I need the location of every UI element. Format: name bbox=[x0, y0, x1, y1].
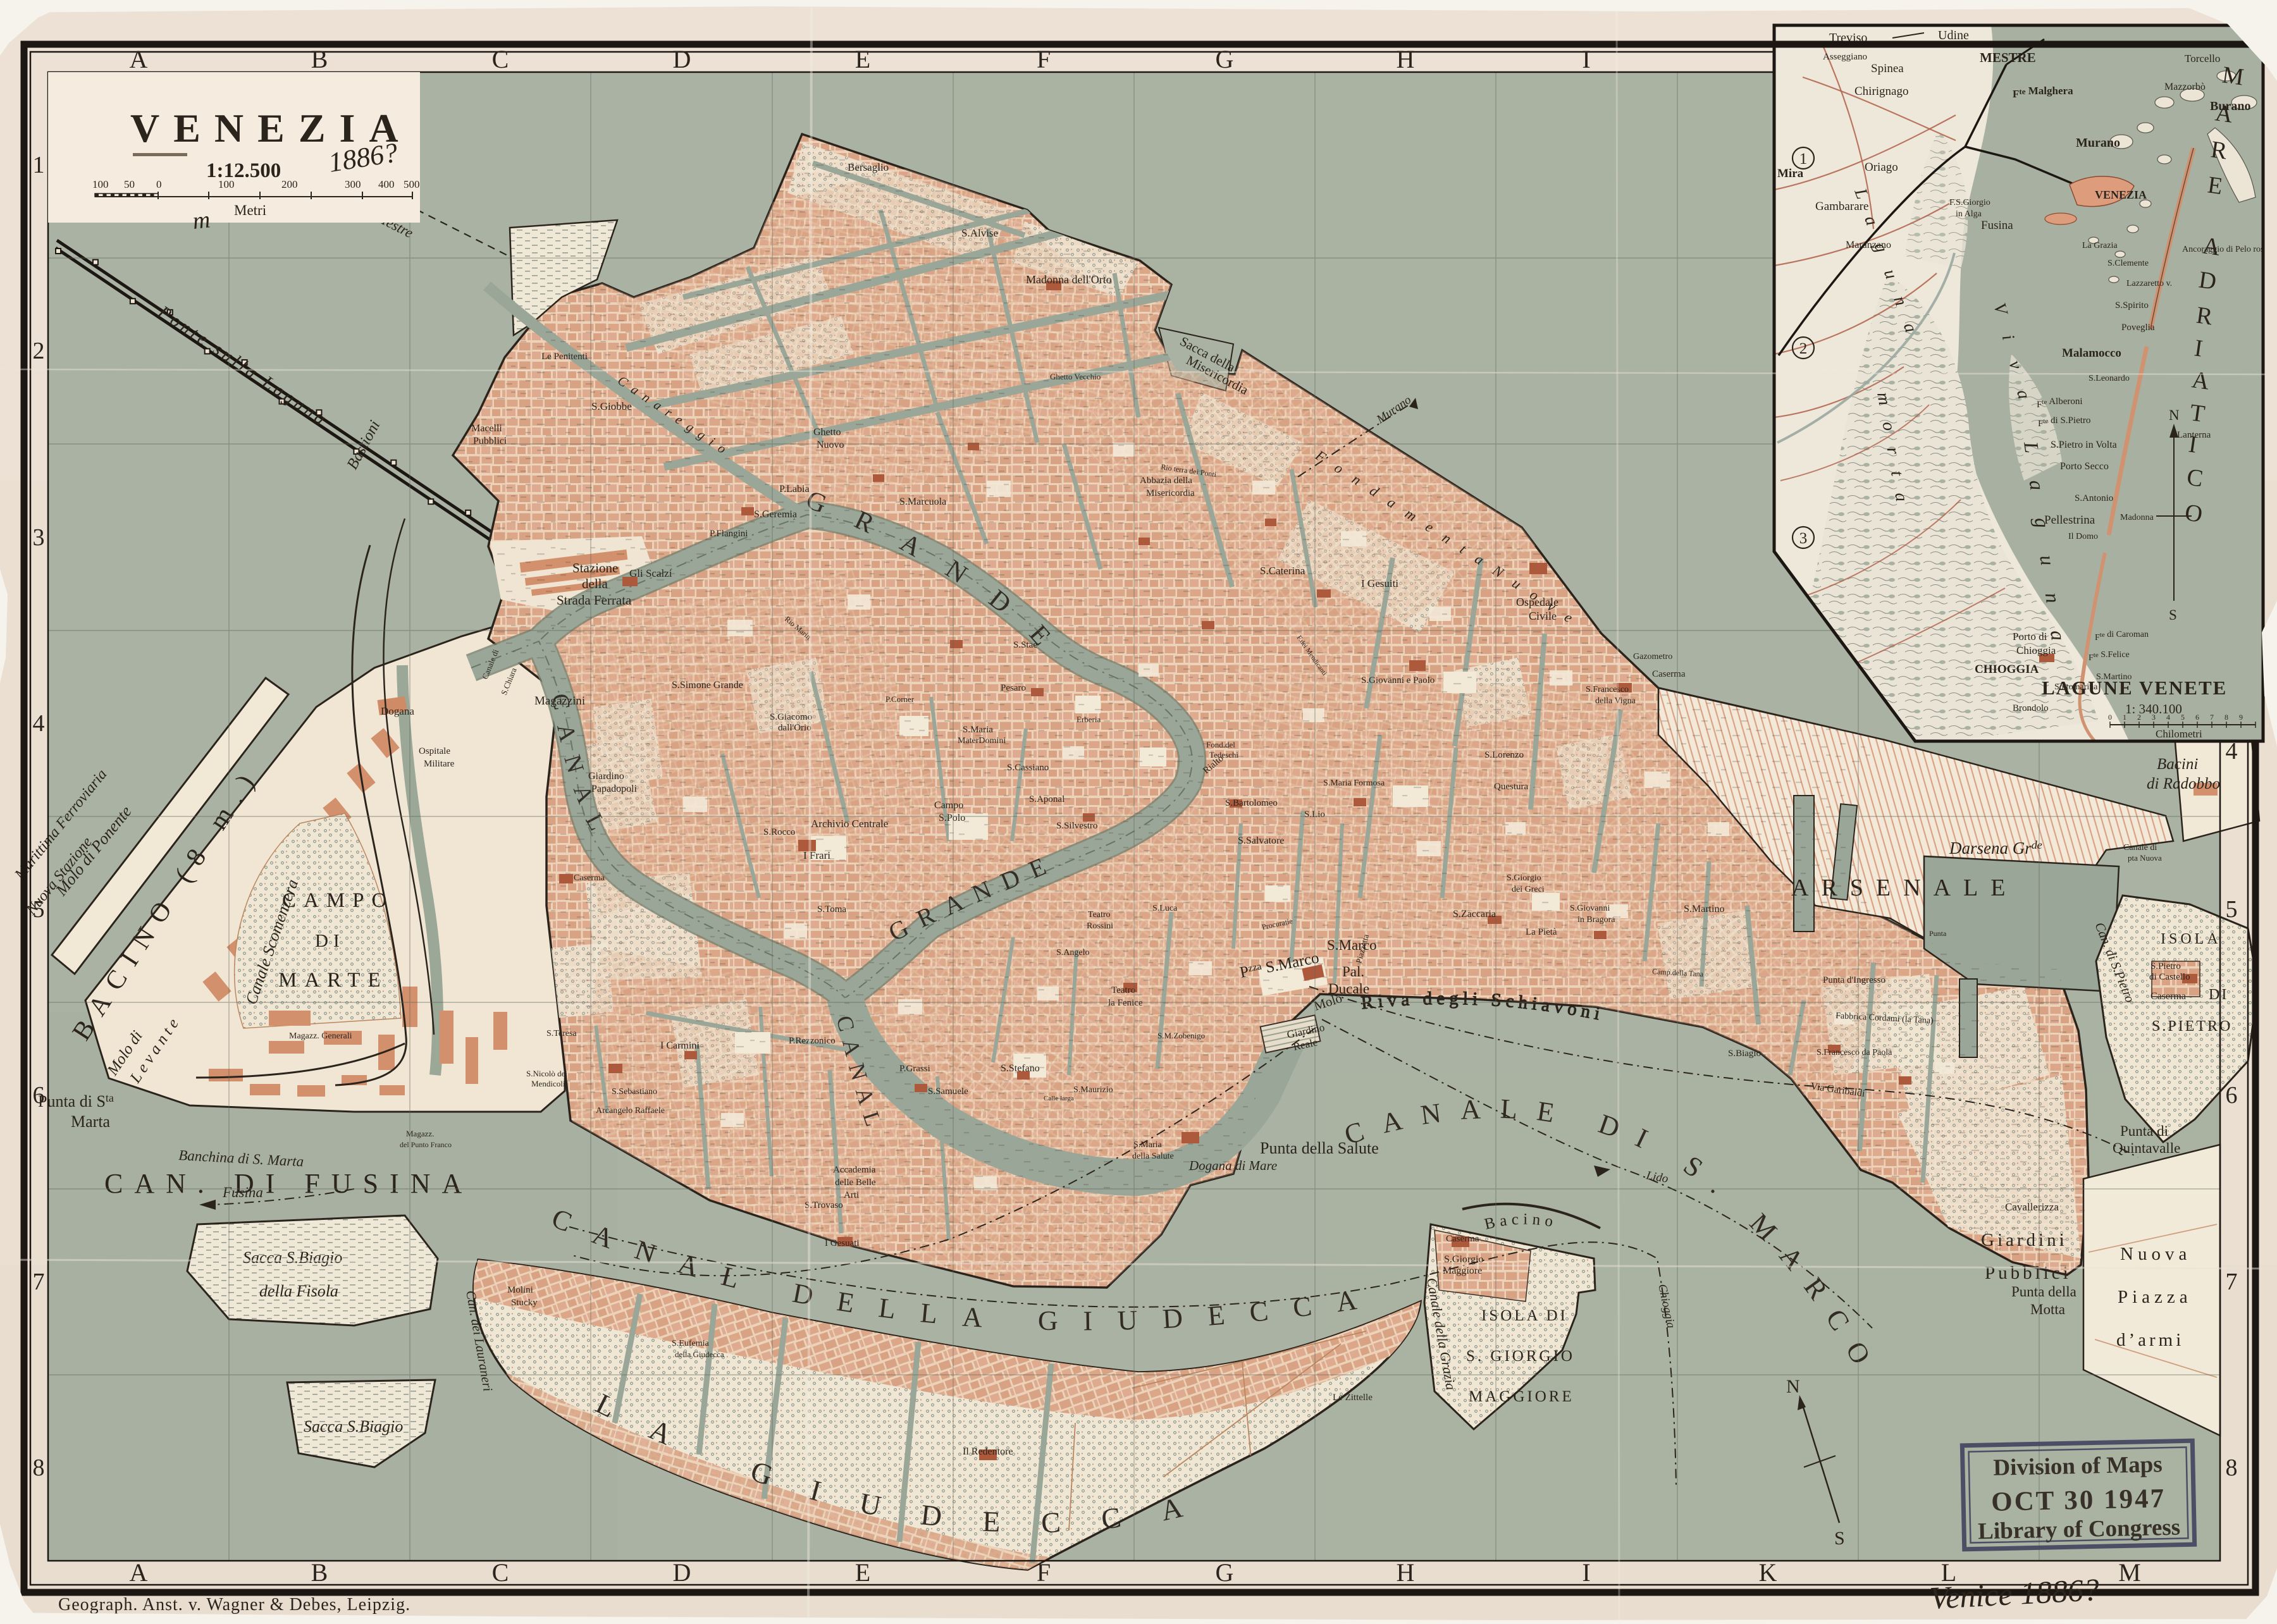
svg-text:500: 500 bbox=[404, 178, 420, 190]
svg-text:Pellestrina: Pellestrina bbox=[2044, 514, 2095, 527]
svg-text:Brondolo: Brondolo bbox=[2013, 703, 2049, 713]
svg-text:100: 100 bbox=[218, 178, 235, 190]
svg-text:Mendicoli: Mendicoli bbox=[531, 1079, 565, 1088]
svg-text:E: E bbox=[855, 45, 870, 73]
svg-text:S.Stefano: S.Stefano bbox=[1001, 1063, 1040, 1074]
svg-text:2: 2 bbox=[1799, 340, 1808, 357]
svg-text:S.Maria Formosa: S.Maria Formosa bbox=[1323, 778, 1385, 788]
svg-text:G: G bbox=[1216, 45, 1234, 73]
svg-text:Chilometri: Chilometri bbox=[2156, 728, 2202, 740]
svg-text:Punta: Punta bbox=[1929, 929, 1947, 938]
svg-text:Militare: Militare bbox=[424, 759, 455, 769]
svg-text:0: 0 bbox=[156, 178, 162, 190]
svg-text:S.Maurizio: S.Maurizio bbox=[1073, 1085, 1113, 1095]
svg-text:I Gesuati: I Gesuati bbox=[825, 1238, 860, 1248]
svg-text:S.Toma: S.Toma bbox=[817, 904, 846, 914]
svg-text:S.Francesco da Paola: S.Francesco da Paola bbox=[1817, 1048, 1892, 1057]
svg-text:S.Maria: S.Maria bbox=[1133, 1140, 1163, 1150]
svg-text:D: D bbox=[2197, 266, 2218, 295]
svg-text:Punta della: Punta della bbox=[2011, 1284, 2076, 1300]
svg-text:P.Labia: P.Labia bbox=[779, 484, 810, 495]
svg-text:S.Salvatore: S.Salvatore bbox=[1238, 835, 1284, 846]
svg-text:Magazzini: Magazzini bbox=[534, 694, 585, 708]
svg-text:Sacca S.Biagio: Sacca S.Biagio bbox=[304, 1417, 403, 1436]
svg-text:Misericordia: Misericordia bbox=[1146, 488, 1195, 498]
svg-text:7: 7 bbox=[33, 1269, 45, 1295]
svg-text:Udine: Udine bbox=[1938, 28, 1969, 42]
svg-text:S.Pietro: S.Pietro bbox=[2150, 961, 2181, 971]
svg-text:Torcello: Torcello bbox=[2185, 52, 2220, 65]
svg-text:Bacini: Bacini bbox=[2157, 756, 2198, 773]
svg-text:S.Francesco: S.Francesco bbox=[1586, 685, 1629, 694]
svg-text:MESTRE: MESTRE bbox=[1980, 50, 2036, 65]
svg-text:5: 5 bbox=[2181, 713, 2185, 722]
svg-text:Motta: Motta bbox=[2030, 1301, 2065, 1317]
svg-text:S.Lorenzo: S.Lorenzo bbox=[1484, 750, 1524, 760]
svg-text:Maggiore: Maggiore bbox=[1443, 1265, 1482, 1276]
svg-text:Porto di: Porto di bbox=[2013, 631, 2047, 643]
svg-text:K: K bbox=[1759, 1558, 1777, 1587]
svg-text:P.Rezzonico: P.Rezzonico bbox=[789, 1036, 836, 1046]
svg-text:Chirignago: Chirignago bbox=[1854, 85, 1909, 98]
svg-text:Mazzorbò: Mazzorbò bbox=[2164, 82, 2206, 92]
svg-text:dei Greci: dei Greci bbox=[1512, 885, 1545, 894]
svg-text:Arcangelo Raffaele: Arcangelo Raffaele bbox=[596, 1106, 665, 1116]
svg-text:I: I bbox=[1582, 1558, 1590, 1587]
svg-text:400: 400 bbox=[378, 178, 395, 190]
svg-text:F: F bbox=[1037, 1558, 1051, 1587]
svg-text:in Bragora: in Bragora bbox=[1577, 915, 1615, 925]
svg-text:3: 3 bbox=[1799, 530, 1808, 547]
svg-text:S.Martino: S.Martino bbox=[1684, 904, 1724, 914]
svg-text:Division of Maps: Division of Maps bbox=[1993, 1451, 2163, 1481]
svg-text:di Castello: di Castello bbox=[2149, 972, 2190, 982]
svg-text:Bersaglio: Bersaglio bbox=[848, 161, 889, 173]
svg-text:Library of Congress: Library of Congress bbox=[1978, 1515, 2181, 1545]
svg-text:S.Biagio: S.Biagio bbox=[1728, 1049, 1761, 1059]
svg-text:100: 100 bbox=[92, 178, 109, 190]
svg-text:S.Leonardo: S.Leonardo bbox=[2089, 374, 2130, 383]
svg-text:dall'Orio: dall'Orio bbox=[778, 723, 811, 733]
svg-text:S.Teresa: S.Teresa bbox=[546, 1029, 577, 1038]
svg-text:Papadopoli: Papadopoli bbox=[591, 784, 638, 794]
svg-text:50: 50 bbox=[124, 178, 135, 190]
svg-text:Ancoraggio di Pelo rosso: Ancoraggio di Pelo rosso bbox=[2182, 245, 2272, 254]
svg-text:Poveglia: Poveglia bbox=[2121, 323, 2155, 333]
svg-text:S.Pietro in Volta: S.Pietro in Volta bbox=[2051, 440, 2117, 450]
svg-text:S.Giacomo: S.Giacomo bbox=[770, 712, 812, 722]
svg-text:Gambarare: Gambarare bbox=[1815, 200, 1868, 213]
svg-text:A: A bbox=[130, 45, 148, 73]
svg-text:Maranzano: Maranzano bbox=[1846, 240, 1891, 250]
svg-text:200: 200 bbox=[281, 178, 298, 190]
svg-text:Chioggia: Chioggia bbox=[2016, 644, 2056, 656]
svg-text:Fond.del: Fond.del bbox=[1206, 740, 1235, 749]
svg-text:I Frari: I Frari bbox=[803, 849, 830, 861]
svg-text:ARSENALE: ARSENALE bbox=[1791, 875, 2018, 901]
svg-text:della Giudecca: della Giudecca bbox=[675, 1350, 724, 1359]
svg-text:P.Corner: P.Corner bbox=[885, 694, 915, 704]
svg-text:OCT 30 1947: OCT 30 1947 bbox=[1991, 1484, 2166, 1517]
svg-text:delle Belle: delle Belle bbox=[835, 1178, 876, 1188]
svg-text:F: F bbox=[1037, 45, 1051, 73]
svg-text:I Gesuiti: I Gesuiti bbox=[1361, 577, 1398, 589]
svg-text:Archivio Centrale: Archivio Centrale bbox=[811, 818, 888, 830]
svg-text:P.Grassi: P.Grassi bbox=[899, 1064, 930, 1074]
svg-text:6: 6 bbox=[2226, 1082, 2238, 1109]
svg-text:Lazzaretto v.: Lazzaretto v. bbox=[2126, 279, 2172, 288]
svg-text:Il Redentore: Il Redentore bbox=[963, 1446, 1013, 1457]
svg-text:P.Flangini: P.Flangini bbox=[710, 529, 748, 539]
svg-text:5: 5 bbox=[2226, 896, 2238, 923]
svg-text:di Radobbo: di Radobbo bbox=[2147, 775, 2220, 792]
svg-text:Burano: Burano bbox=[2210, 99, 2250, 113]
svg-text:Cavallerizza: Cavallerizza bbox=[2005, 1201, 2059, 1213]
svg-text:S.Angelo: S.Angelo bbox=[1056, 948, 1090, 957]
svg-text:della Salute: della Salute bbox=[1132, 1152, 1174, 1161]
svg-text:Porto Secco: Porto Secco bbox=[2060, 461, 2109, 472]
svg-text:Macelli: Macelli bbox=[471, 423, 502, 434]
svg-text:N: N bbox=[1786, 1376, 1800, 1397]
svg-text:D: D bbox=[673, 1558, 691, 1587]
svg-text:Ghetto: Ghetto bbox=[813, 427, 841, 438]
svg-text:Le Zittelle: Le Zittelle bbox=[1333, 1393, 1373, 1403]
svg-text:Stazione: Stazione bbox=[572, 560, 618, 575]
svg-text:della Vigna: della Vigna bbox=[1595, 696, 1636, 706]
svg-text:Abbazia della: Abbazia della bbox=[1140, 476, 1192, 486]
svg-text:E: E bbox=[855, 1558, 870, 1587]
svg-text:VENEZIA: VENEZIA bbox=[2095, 188, 2147, 201]
svg-text:Madonna dell'Orto: Madonna dell'Orto bbox=[1026, 273, 1112, 286]
svg-text:8: 8 bbox=[2226, 1455, 2238, 1481]
svg-text:C: C bbox=[492, 1558, 509, 1587]
svg-text:Gazometro: Gazometro bbox=[1633, 652, 1672, 661]
svg-text:MaterDomini: MaterDomini bbox=[958, 736, 1006, 746]
svg-text:Mira: Mira bbox=[1777, 167, 1804, 180]
svg-text:4: 4 bbox=[2166, 713, 2170, 722]
svg-text:M: M bbox=[2118, 1558, 2141, 1587]
svg-text:S.Spirito: S.Spirito bbox=[2115, 300, 2149, 311]
svg-text:Spinea: Spinea bbox=[1871, 62, 1904, 75]
svg-text:S.Marcuola: S.Marcuola bbox=[899, 496, 946, 507]
svg-text:Darsena Grde: Darsena Grde bbox=[1949, 839, 2042, 858]
svg-text:CAN. DI FUSINA: CAN. DI FUSINA bbox=[104, 1168, 473, 1199]
svg-text:S.Silvestro: S.Silvestro bbox=[1056, 821, 1097, 831]
svg-text:S.Alvise: S.Alvise bbox=[961, 227, 998, 239]
svg-text:Il Domo: Il Domo bbox=[2068, 532, 2098, 541]
svg-text:S.Sebastiano: S.Sebastiano bbox=[612, 1087, 657, 1097]
svg-text:Asseggiano: Asseggiano bbox=[1823, 52, 1867, 62]
svg-text:S.Staè: S.Staè bbox=[1013, 640, 1037, 650]
svg-text:S.Cassiano: S.Cassiano bbox=[1007, 763, 1049, 773]
svg-text:S.Bartolomeo: S.Bartolomeo bbox=[1225, 798, 1278, 808]
svg-text:Nuova: Nuova bbox=[2120, 1244, 2191, 1264]
svg-text:in Alga: in Alga bbox=[1956, 209, 1982, 219]
svg-text:Fusina: Fusina bbox=[1981, 219, 2013, 232]
svg-text:7: 7 bbox=[2226, 1269, 2238, 1295]
svg-text:S.Caterina: S.Caterina bbox=[1260, 565, 1305, 577]
svg-text:Ospedale: Ospedale bbox=[1516, 596, 1558, 608]
svg-text:S.Giobbe: S.Giobbe bbox=[591, 400, 632, 412]
svg-text:Questura: Questura bbox=[1494, 782, 1528, 792]
svg-text:S.Eufemia: S.Eufemia bbox=[672, 1339, 709, 1348]
svg-text:Strada Ferrata: Strada Ferrata bbox=[557, 593, 632, 608]
svg-text:2: 2 bbox=[33, 338, 45, 364]
svg-text:Madonna: Madonna bbox=[2120, 513, 2154, 522]
svg-text:Pesaro: Pesaro bbox=[1001, 683, 1026, 693]
svg-text:Teatro: Teatro bbox=[1111, 985, 1135, 995]
svg-text:I: I bbox=[1582, 45, 1590, 73]
svg-text:La Pietà: La Pietà bbox=[1526, 927, 1557, 937]
svg-text:la Fenice: la Fenice bbox=[1108, 998, 1143, 1008]
svg-text:Lanterna: Lanterna bbox=[2177, 430, 2211, 440]
svg-text:Rossini: Rossini bbox=[1087, 921, 1113, 931]
svg-text:S.Simone Grande: S.Simone Grande bbox=[672, 680, 743, 691]
svg-text:Caserma: Caserma bbox=[1652, 669, 1686, 679]
svg-text:della: della bbox=[582, 576, 608, 591]
svg-text:Pubblici: Pubblici bbox=[473, 436, 507, 446]
svg-text:S.Luca: S.Luca bbox=[1152, 904, 1178, 913]
svg-text:MARTE: MARTE bbox=[278, 969, 388, 992]
svg-text:S.Zaccaria: S.Zaccaria bbox=[1453, 909, 1496, 920]
svg-text:Magazz. Generali: Magazz. Generali bbox=[289, 1031, 352, 1041]
svg-text:G: G bbox=[1216, 1558, 1234, 1587]
svg-text:Civile: Civile bbox=[1529, 610, 1557, 622]
svg-text:4: 4 bbox=[33, 710, 45, 737]
svg-text:Nuovo: Nuovo bbox=[817, 440, 844, 450]
svg-text:O: O bbox=[2183, 499, 2204, 527]
svg-text:Campo: Campo bbox=[934, 800, 963, 811]
svg-text:ISOLA DI: ISOLA DI bbox=[1481, 1307, 1568, 1324]
svg-text:S: S bbox=[2169, 607, 2177, 623]
svg-text:Caserma: Caserma bbox=[1446, 1234, 1479, 1244]
svg-text:7: 7 bbox=[2210, 713, 2214, 722]
svg-text:8: 8 bbox=[33, 1455, 45, 1481]
svg-text:Marta: Marta bbox=[71, 1112, 111, 1131]
svg-text:B: B bbox=[311, 1558, 328, 1587]
svg-text:DI: DI bbox=[315, 931, 345, 951]
svg-text:Gli Scalzi: Gli Scalzi bbox=[629, 567, 672, 579]
svg-text:A: A bbox=[130, 1558, 148, 1587]
svg-text:del Punto Franco: del Punto Franco bbox=[400, 1140, 452, 1149]
svg-text:ISOLA: ISOLA bbox=[2161, 931, 2221, 947]
svg-text:S.Polo: S.Polo bbox=[939, 813, 965, 823]
svg-text:Pubblici: Pubblici bbox=[1985, 1263, 2071, 1283]
svg-text:Punta di: Punta di bbox=[2120, 1123, 2168, 1139]
svg-text:5: 5 bbox=[33, 896, 45, 923]
svg-text:8: 8 bbox=[2225, 713, 2228, 722]
svg-text:pta Nuova: pta Nuova bbox=[2128, 853, 2162, 863]
svg-text:S.Geremia: S.Geremia bbox=[754, 509, 797, 520]
svg-text:2: 2 bbox=[2137, 713, 2141, 722]
svg-text:S.M.Zobenigo: S.M.Zobenigo bbox=[1157, 1031, 1205, 1040]
svg-text:D: D bbox=[673, 45, 691, 73]
svg-text:della Fisola: della Fisola bbox=[259, 1282, 338, 1300]
svg-text:S.Clemente: S.Clemente bbox=[2107, 259, 2149, 268]
svg-text:Geograph. Anst. v. Wagner & De: Geograph. Anst. v. Wagner & Debes, Leipz… bbox=[58, 1595, 410, 1615]
svg-text:1: 1 bbox=[1799, 151, 1808, 168]
svg-text:Murano: Murano bbox=[2076, 136, 2120, 150]
svg-text:Piazza: Piazza bbox=[2118, 1287, 2192, 1307]
svg-text:F.S.Giorgio: F.S.Giorgio bbox=[1949, 198, 1990, 207]
svg-text:Giardino: Giardino bbox=[588, 771, 624, 782]
svg-text:Punta della Salute: Punta della Salute bbox=[1260, 1139, 1379, 1157]
svg-text:Arti: Arti bbox=[844, 1190, 859, 1200]
svg-text:S.Samuele: S.Samuele bbox=[928, 1086, 968, 1097]
svg-text:1:12.500: 1:12.500 bbox=[206, 159, 281, 182]
svg-text:LAGUNE VENETE: LAGUNE VENETE bbox=[2042, 677, 2227, 699]
svg-text:I Carmini: I Carmini bbox=[660, 1040, 700, 1051]
svg-text:Erberia: Erberia bbox=[1077, 715, 1101, 724]
svg-text:N: N bbox=[2169, 407, 2180, 423]
svg-text:Dogana di Mare: Dogana di Mare bbox=[1188, 1158, 1277, 1173]
svg-text:S.Giovanni e Paolo: S.Giovanni e Paolo bbox=[1361, 675, 1435, 686]
svg-text:Calle larga: Calle larga bbox=[1044, 1095, 1074, 1102]
svg-text:Ghetto Vecchio: Ghetto Vecchio bbox=[1050, 372, 1101, 381]
svg-text:Malamocco: Malamocco bbox=[2062, 347, 2121, 360]
svg-text:S. GIORGIO: S. GIORGIO bbox=[1466, 1348, 1575, 1365]
svg-text:CHIOGGIA: CHIOGGIA bbox=[1975, 663, 2039, 676]
svg-text:300: 300 bbox=[345, 178, 361, 190]
svg-text:B: B bbox=[311, 45, 328, 73]
svg-text:1: 1 bbox=[33, 152, 45, 178]
svg-text:Tedeschi: Tedeschi bbox=[1209, 750, 1238, 760]
svg-text:Fusina: Fusina bbox=[222, 1184, 263, 1200]
svg-text:MAGGIORE: MAGGIORE bbox=[1469, 1388, 1574, 1405]
svg-text:M: M bbox=[2221, 61, 2245, 90]
svg-text:d’armi: d’armi bbox=[2116, 1330, 2184, 1350]
svg-text:3: 3 bbox=[2152, 713, 2156, 722]
svg-text:S.Rocco: S.Rocco bbox=[763, 827, 795, 837]
svg-text:S.Giorgio: S.Giorgio bbox=[1507, 873, 1541, 883]
svg-text:Canale di: Canale di bbox=[2123, 843, 2157, 852]
svg-text:Molini: Molini bbox=[507, 1285, 533, 1295]
svg-text:DI: DI bbox=[2209, 987, 2228, 1003]
svg-text:Quintavalle: Quintavalle bbox=[2113, 1140, 2180, 1156]
svg-text:Teatro: Teatro bbox=[1088, 910, 1111, 920]
svg-text:S.Nicolò dei: S.Nicolò dei bbox=[526, 1069, 567, 1078]
svg-text:Punta d'Ingresso: Punta d'Ingresso bbox=[1823, 975, 1885, 985]
svg-text:S.Aponal: S.Aponal bbox=[1029, 794, 1064, 804]
svg-text:Metri: Metri bbox=[234, 202, 266, 218]
svg-text:3: 3 bbox=[33, 524, 45, 551]
svg-text:Oriago: Oriago bbox=[1865, 161, 1898, 174]
svg-text:Stucky: Stucky bbox=[511, 1298, 538, 1308]
svg-text:0: 0 bbox=[2108, 713, 2112, 722]
svg-text:S.Maria: S.Maria bbox=[963, 725, 993, 735]
svg-text:S.Giorgio: S.Giorgio bbox=[1444, 1254, 1483, 1265]
svg-text:C: C bbox=[492, 45, 509, 73]
svg-text:Sacca S.Biagio: Sacca S.Biagio bbox=[243, 1248, 342, 1267]
svg-text:S.Giovanni: S.Giovanni bbox=[1570, 904, 1610, 913]
svg-text:9: 9 bbox=[2239, 713, 2243, 722]
svg-text:H: H bbox=[1397, 45, 1415, 73]
svg-text:Pal.: Pal. bbox=[1342, 964, 1364, 980]
svg-text:Accademia: Accademia bbox=[833, 1165, 876, 1175]
svg-text:Le Penitenti: Le Penitenti bbox=[541, 352, 588, 362]
svg-text:Ospitale: Ospitale bbox=[419, 746, 450, 756]
svg-text:1: 1 bbox=[2123, 713, 2126, 722]
svg-text:H: H bbox=[1397, 1558, 1415, 1587]
svg-text:Caserma: Caserma bbox=[574, 873, 605, 883]
svg-text:S: S bbox=[1834, 1528, 1845, 1549]
svg-text:La Grazia: La Grazia bbox=[2082, 241, 2118, 250]
svg-text:6: 6 bbox=[33, 1082, 45, 1109]
svg-text:S.Antonio: S.Antonio bbox=[2075, 493, 2113, 503]
svg-text:CAMPO: CAMPO bbox=[282, 889, 394, 912]
svg-text:Punta di Sta: Punta di Sta bbox=[38, 1092, 114, 1110]
svg-text:6: 6 bbox=[2195, 713, 2199, 722]
svg-text:Caserma: Caserma bbox=[2150, 991, 2186, 1002]
svg-text:Giardini: Giardini bbox=[1981, 1230, 2068, 1250]
svg-text:m: m bbox=[192, 206, 212, 235]
